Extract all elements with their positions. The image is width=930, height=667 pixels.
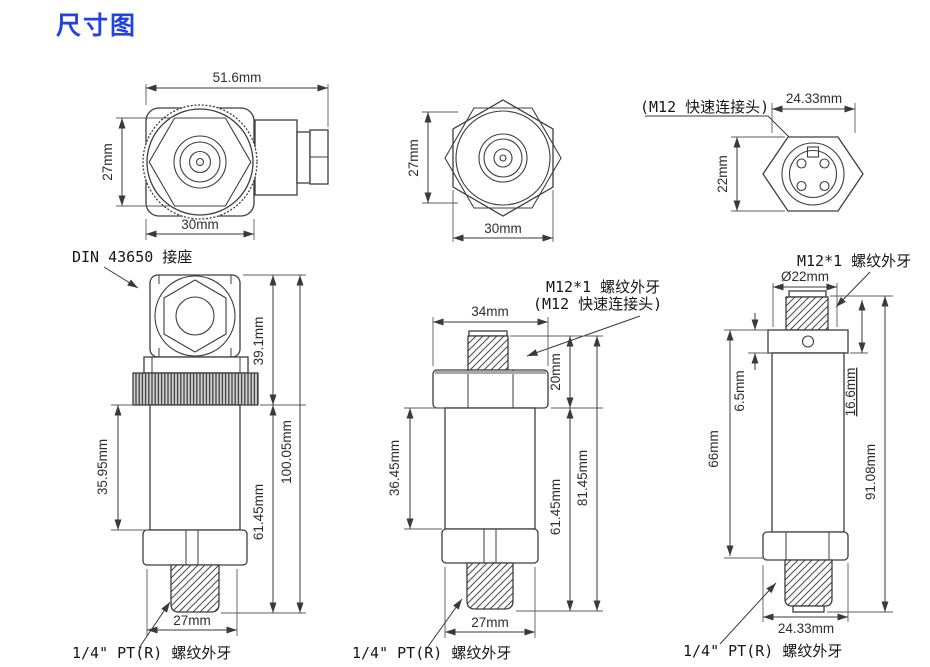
m12-top-view: 27mm 30mm [406, 100, 561, 242]
dim-din-body: 35.95mm [95, 439, 110, 495]
m12-thread-connector [468, 336, 508, 370]
dim-din-hex: 27mm [173, 613, 211, 628]
dim-m12c-hex: 24.33mm [778, 621, 834, 636]
cable-gland-body [255, 120, 297, 195]
dim-m12c-dia: Ø22mm [781, 269, 829, 284]
m12-thread-label: M12*1 螺纹外牙 [546, 278, 660, 296]
dimension-drawing-canvas: 51.6mm 27mm 30mm DIN 43650 接座 39.1mm [0, 0, 930, 667]
m12-hex-nut [442, 529, 538, 563]
dim-din-total: 100.05mm [279, 420, 294, 484]
m12c-thread-label: M12*1 螺纹外牙 [797, 252, 911, 270]
din-side-view: DIN 43650 接座 39.1mm 61.45mm 100.05mm 35.… [72, 248, 306, 662]
dim-din-top-height: 27mm [100, 143, 115, 181]
m12c-top-view: (M12 快速连接头) 24.33mm 22mm [640, 91, 863, 211]
m12-thread-quarter-label: 1/4" PT(R) 螺纹外牙 [352, 644, 511, 662]
din-socket-leader [104, 267, 138, 288]
dim-m12-lower: 61.45mm [548, 479, 563, 535]
m12-side-view: M12*1 螺纹外牙 (M12 快速连接头) 34mm 20mm 61.45mm… [352, 278, 662, 662]
m12c-thread-quarter-label: 1/4" PT(R) 螺纹外牙 [683, 642, 842, 660]
m12c-thread-leader [836, 272, 870, 307]
m12c-top-hex [763, 137, 863, 211]
m12c-thread-cap [789, 291, 826, 297]
m12-thread-stud-leader [427, 599, 462, 648]
sensor-body [150, 405, 240, 530]
cable-gland-neck [297, 132, 310, 183]
knurled-ring-inner [147, 109, 253, 215]
din-thread-label: 1/4" PT(R) 螺纹外牙 [72, 644, 231, 662]
dim-din-lower: 61.45mm [251, 484, 266, 540]
dim-m12c-collar: 6.5mm [732, 370, 747, 411]
dim-m12-total: 81.45mm [575, 450, 590, 506]
dim-m12c-top-width: 24.33mm [786, 91, 842, 106]
knurled-locking-ring [133, 373, 258, 405]
m12-thread-cap [469, 331, 507, 336]
dim-din-top-hex: 30mm [181, 217, 219, 232]
m12c-thread-connector [786, 297, 828, 330]
m12c-hex-nut [763, 532, 848, 560]
m12c-stud-leader [720, 583, 776, 644]
dim-m12c-upper: 16.6mm [843, 368, 858, 417]
dim-m12-top-height: 27mm [406, 139, 421, 177]
dim-m12c-top-height: 22mm [715, 155, 730, 193]
m12-thread-stud [467, 563, 513, 609]
m12c-side-view: M12*1 螺纹外牙 Ø22mm 16.6mm 6.5mm 66mm 91.08… [683, 252, 911, 660]
dim-m12c-body: 66mm [706, 430, 721, 468]
din-top-view: 51.6mm 27mm 30mm [100, 70, 328, 240]
m12c-quick-label: (M12 快速连接头) [640, 98, 769, 116]
din-socket-label: DIN 43650 接座 [72, 248, 192, 266]
m12-quick-label: (M12 快速连接头) [533, 295, 662, 313]
dim-din-upper: 39.1mm [251, 317, 266, 366]
m12c-body [772, 353, 844, 532]
m12-upper-hex [433, 370, 548, 408]
dim-m12-top-hex: 30mm [484, 221, 522, 236]
dim-m12c-total: 91.08mm [863, 444, 878, 500]
hex-nut [143, 530, 247, 565]
dimension-diagram-page: 尺寸图 [0, 0, 930, 667]
din-thread-leader [139, 602, 170, 648]
dim-m12-hex: 27mm [471, 615, 509, 630]
m12c-collar [768, 330, 848, 353]
dim-m12-hex-width: 34mm [471, 304, 509, 319]
thread-stud [171, 565, 219, 612]
m12-body [445, 408, 535, 529]
dim-m12-conn-height: 20mm [548, 353, 563, 391]
m12c-thread-stud [785, 560, 832, 606]
connector-plate [144, 357, 248, 373]
dim-din-top-width: 51.6mm [213, 70, 262, 85]
dim-m12-body: 36.45mm [387, 440, 402, 496]
m12c-stud-tip [793, 606, 824, 612]
